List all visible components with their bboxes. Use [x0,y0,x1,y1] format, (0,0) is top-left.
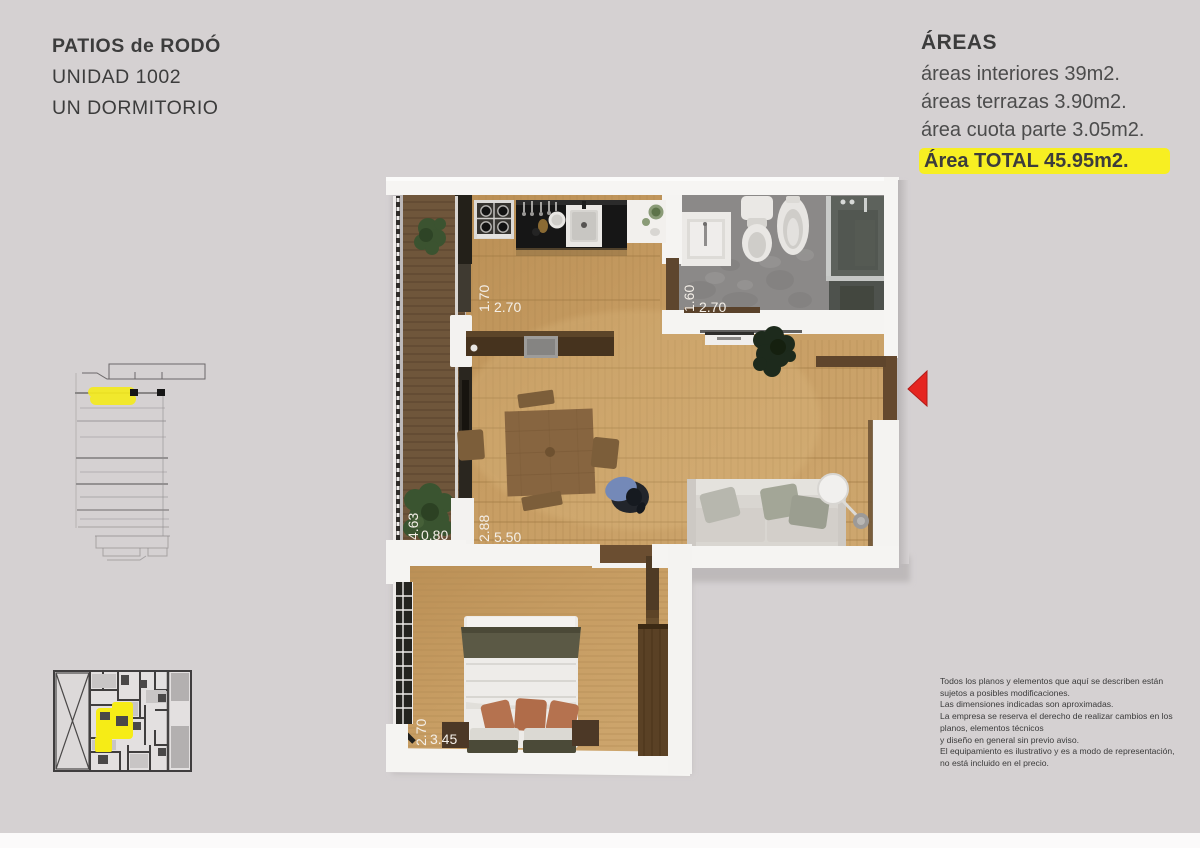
svg-text:4.63: 4.63 [405,513,421,540]
svg-text:0.80: 0.80 [421,527,448,543]
svg-text:1.60: 1.60 [681,285,697,312]
svg-text:1.70: 1.70 [476,285,492,312]
svg-text:2.70: 2.70 [699,299,726,315]
svg-text:2.70: 2.70 [413,719,429,746]
svg-text:3.45: 3.45 [430,731,457,747]
svg-text:2.70: 2.70 [494,299,521,315]
svg-text:5.50: 5.50 [494,529,521,545]
svg-text:2.88: 2.88 [476,515,492,542]
